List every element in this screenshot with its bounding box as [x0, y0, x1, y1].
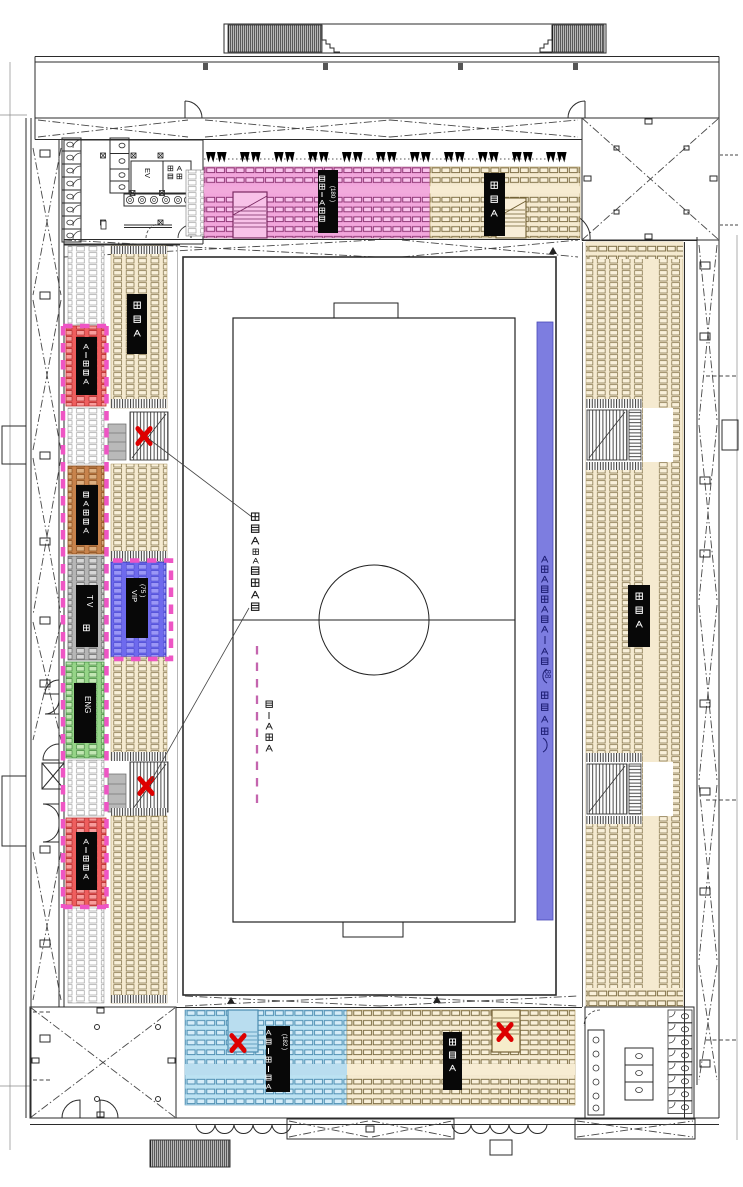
- svg-text:VIP: VIP: [130, 590, 139, 602]
- svg-text:EV: EV: [143, 168, 152, 178]
- svg-text:(182 ): (182 ): [281, 1034, 288, 1050]
- svg-text:(180 ): (180 ): [329, 186, 336, 202]
- svg-text:(75 ): (75 ): [139, 584, 146, 597]
- svg-text:T V: T V: [85, 595, 94, 608]
- svg-text:88: 88: [543, 670, 552, 679]
- svg-text:ENG: ENG: [83, 696, 92, 713]
